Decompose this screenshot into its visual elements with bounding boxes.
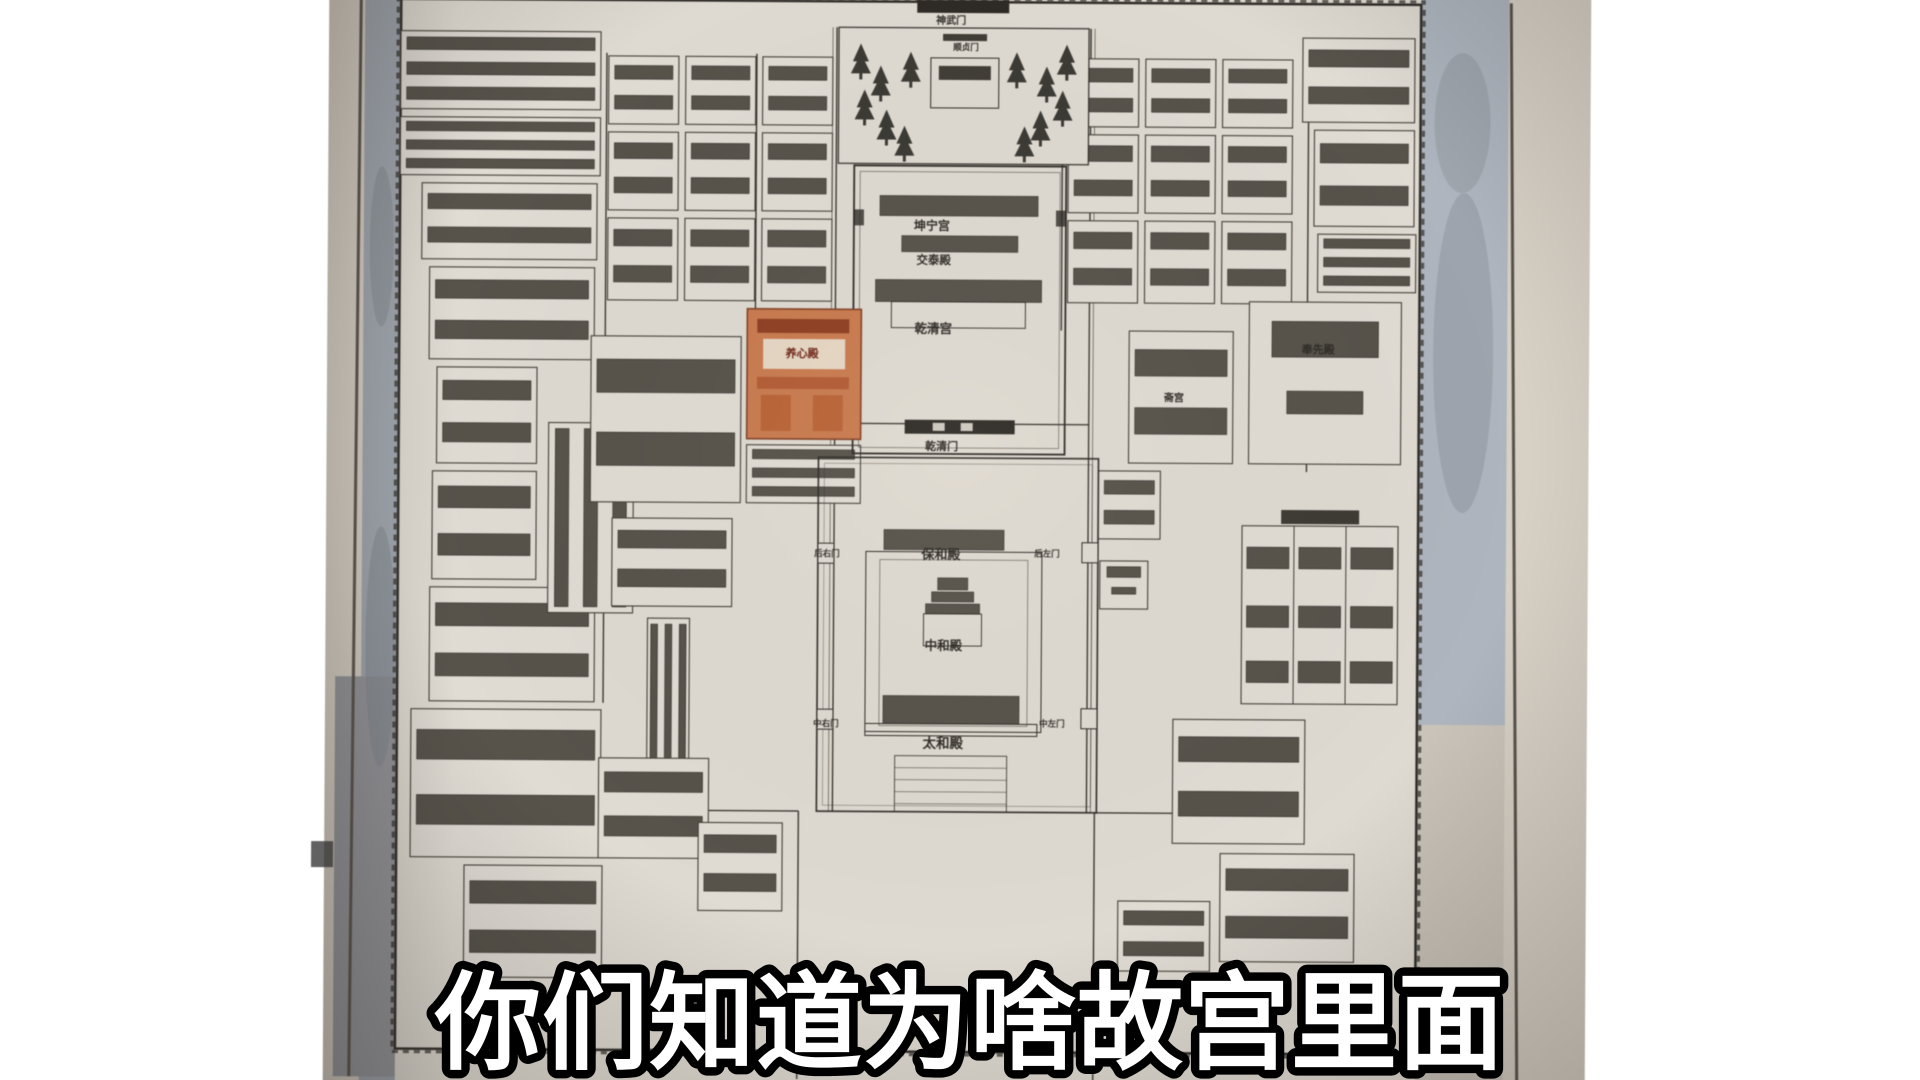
video-frame: 神武门 顺贞门 坤宁宫 交泰殿 乾清宫 养心殿 乾清门 后右门 保和殿 后左门 … (0, 0, 1920, 1080)
scene-svg: 神武门 顺贞门 坤宁宫 交泰殿 乾清宫 养心殿 乾清门 后右门 保和殿 后左门 … (0, 0, 1920, 1080)
map-photo: 神武门 顺贞门 坤宁宫 交泰殿 乾清宫 养心殿 乾清门 后右门 保和殿 后左门 … (310, 0, 1592, 1080)
video-subtitle: 你们知道为啥故宫里面 (434, 965, 1505, 1080)
photo-left-shade (323, 0, 460, 1080)
photo-vignette (323, 0, 1592, 1080)
